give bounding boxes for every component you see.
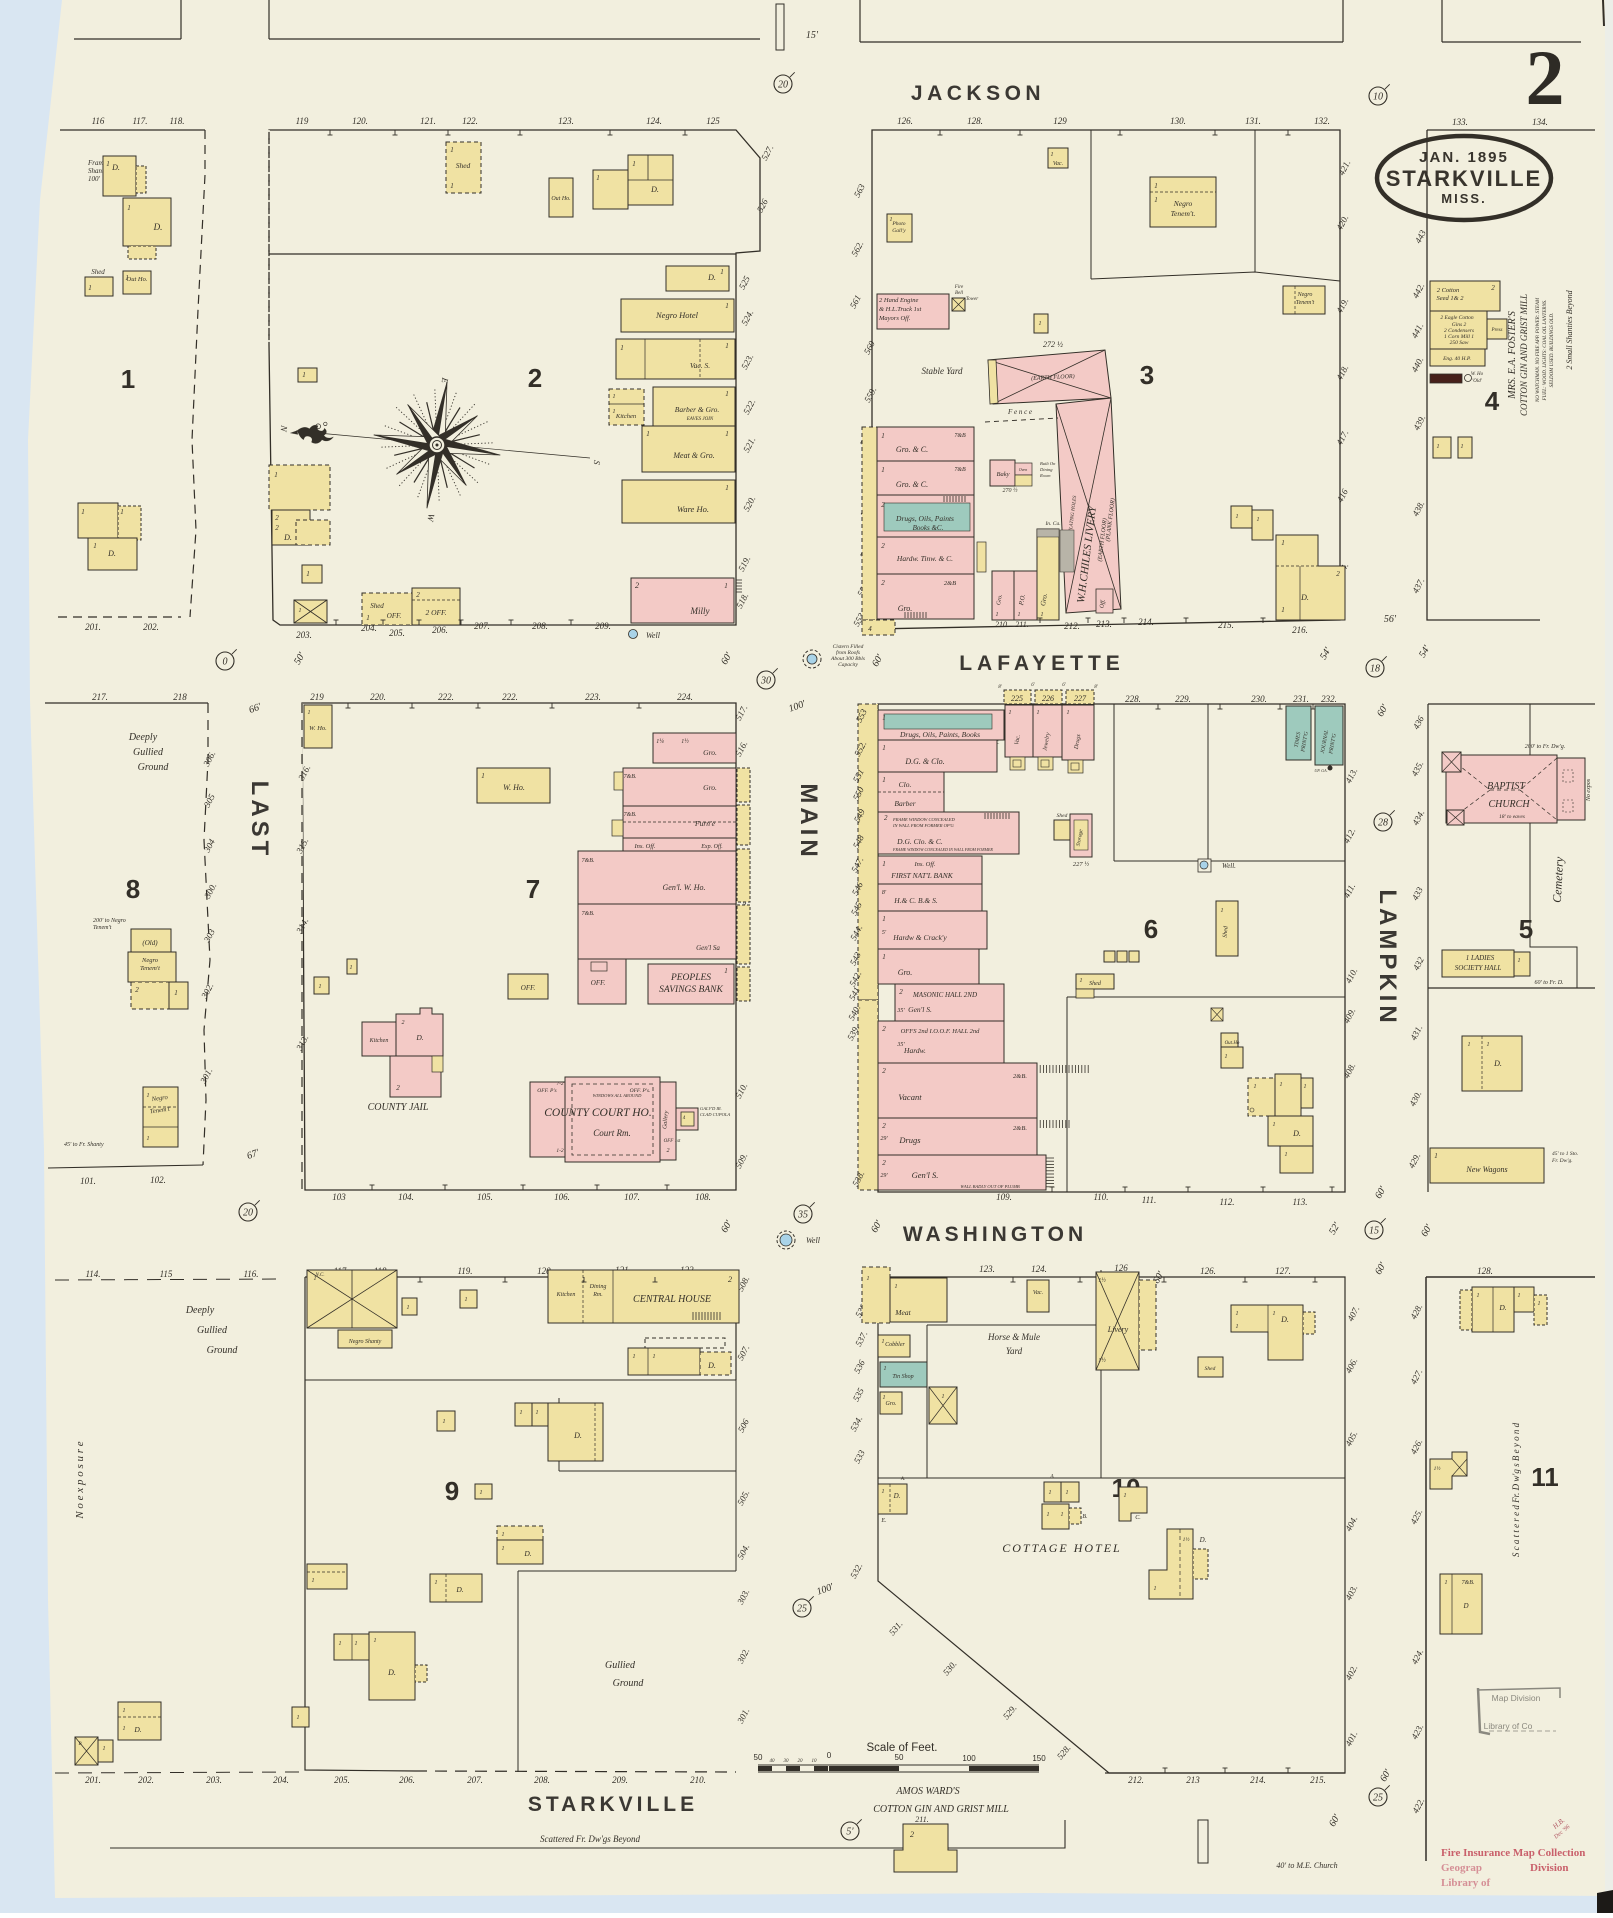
svg-text:S c a t t e r e d Fr. D w'g: S c a t t e r e d Fr. D w'g s B e y o n … — [1511, 1422, 1521, 1557]
svg-text:1: 1 — [1009, 710, 1012, 716]
svg-text:New Wagons: New Wagons — [1465, 1165, 1507, 1174]
svg-text:Oven: Oven — [1019, 467, 1027, 472]
svg-text:CLAD CUPOLA: CLAD CUPOLA — [700, 1112, 730, 1117]
svg-text:WALL BADLY OUT OF PLUMB: WALL BADLY OUT OF PLUMB — [960, 1184, 1019, 1189]
svg-text:1: 1 — [1280, 1082, 1283, 1088]
svg-text:LAMPKIN: LAMPKIN — [1374, 889, 1401, 1026]
svg-text:Seed 1& 2: Seed 1& 2 — [1436, 295, 1464, 302]
svg-text:1-2: 1-2 — [556, 1148, 564, 1154]
svg-text:123.: 123. — [979, 1264, 995, 1274]
svg-text:FIRST NAT'L BANK: FIRST NAT'L BANK — [890, 871, 953, 880]
svg-text:226: 226 — [1042, 694, 1054, 703]
svg-text:6: 6 — [1144, 914, 1158, 944]
svg-text:Gen'l Sa: Gen'l Sa — [696, 944, 720, 952]
svg-text:OFF. P's: OFF. P's — [537, 1088, 556, 1094]
svg-text:1: 1 — [653, 1354, 656, 1360]
svg-text:Drugs, Oils, Paints, Books: Drugs, Oils, Paints, Books — [899, 730, 980, 739]
svg-text:F e n c e: F e n c e — [1007, 408, 1032, 416]
svg-text:Press: Press — [1491, 328, 1503, 333]
svg-text:Gen'l S.: Gen'l S. — [908, 1005, 932, 1014]
svg-text:250 Saw: 250 Saw — [1450, 340, 1469, 346]
svg-text:1: 1 — [127, 204, 131, 212]
svg-text:1: 1 — [882, 1489, 885, 1495]
svg-text:D.: D. — [573, 1431, 582, 1440]
svg-text:2: 2 — [396, 1084, 400, 1092]
svg-text:4: 4 — [1485, 386, 1500, 416]
svg-text:1½: 1½ — [681, 738, 689, 745]
svg-text:30: 30 — [760, 676, 771, 687]
svg-text:1 LADIES: 1 LADIES — [1466, 954, 1495, 962]
svg-text:Deeply: Deeply — [185, 1305, 215, 1316]
svg-text:107.: 107. — [624, 1192, 640, 1202]
svg-text:1: 1 — [724, 582, 728, 590]
svg-text:223.: 223. — [585, 692, 601, 702]
svg-text:Geograp: Geograp — [1441, 1862, 1482, 1874]
svg-text:50: 50 — [754, 1753, 763, 1762]
svg-text:118.: 118. — [169, 116, 184, 126]
svg-text:FRAME WINDOW CONCEALED: FRAME WINDOW CONCEALED — [892, 817, 955, 822]
svg-text:1: 1 — [620, 344, 624, 352]
svg-text:2 OFF.: 2 OFF. — [425, 608, 446, 617]
svg-text:1: 1 — [646, 430, 650, 438]
svg-text:Kitchen: Kitchen — [369, 1038, 389, 1044]
svg-text:Library of Co: Library of Co — [1484, 1721, 1533, 1731]
svg-text:1: 1 — [882, 915, 886, 923]
svg-text:WASHINGTON: WASHINGTON — [903, 1223, 1087, 1246]
svg-text:1: 1 — [1518, 1293, 1521, 1299]
svg-text:GALV'D IR.: GALV'D IR. — [700, 1106, 722, 1111]
svg-text:122.: 122. — [462, 116, 478, 126]
svg-text:1: 1 — [120, 508, 124, 516]
svg-text:1: 1 — [725, 302, 729, 310]
svg-text:109.: 109. — [996, 1192, 1012, 1202]
svg-text:1: 1 — [450, 182, 454, 190]
svg-text:D.: D. — [707, 273, 716, 282]
svg-text:1: 1 — [1154, 196, 1158, 204]
svg-text:Horse & Mule: Horse & Mule — [987, 1332, 1040, 1342]
svg-text:18: 18 — [1370, 664, 1380, 675]
svg-text:D.: D. — [153, 222, 163, 232]
svg-text:Well.: Well. — [1222, 862, 1236, 870]
svg-text:Photo: Photo — [891, 221, 905, 227]
svg-text:CHURCH: CHURCH — [1488, 799, 1530, 810]
svg-text:1: 1 — [123, 1726, 126, 1732]
svg-text:124.: 124. — [646, 116, 662, 126]
svg-text:Gullied: Gullied — [133, 747, 164, 758]
svg-text:1: 1 — [882, 714, 886, 722]
svg-text:1: 1 — [1225, 1054, 1228, 1060]
svg-text:1: 1 — [725, 430, 729, 438]
svg-text:Milly: Milly — [690, 606, 710, 616]
svg-text:1: 1 — [1445, 1580, 1448, 1586]
svg-text:232.: 232. — [1321, 694, 1337, 704]
svg-text:1: 1 — [1281, 606, 1285, 614]
svg-text:D.: D. — [893, 1492, 901, 1500]
svg-text:1: 1 — [1285, 1152, 1288, 1158]
svg-text:1: 1 — [88, 284, 92, 292]
svg-text:MISS.: MISS. — [1441, 191, 1486, 206]
svg-text:45' to Fr. Shanty: 45' to Fr. Shanty — [64, 1141, 104, 1148]
svg-text:128.: 128. — [967, 116, 983, 126]
svg-text:1: 1 — [312, 1578, 315, 1584]
svg-text:10: 10 — [1373, 92, 1383, 103]
svg-text:2&B: 2&B — [944, 580, 956, 587]
svg-text:A.: A. — [900, 1477, 905, 1482]
svg-text:1: 1 — [1254, 1084, 1257, 1090]
svg-text:1: 1 — [633, 1354, 636, 1360]
svg-text:BAPTIST: BAPTIST — [1487, 781, 1526, 792]
svg-text:127.: 127. — [1275, 1266, 1291, 1276]
svg-text:1: 1 — [1018, 612, 1021, 618]
svg-text:1: 1 — [1461, 444, 1464, 450]
svg-text:202.: 202. — [138, 1775, 154, 1785]
svg-text:30: 30 — [784, 1759, 790, 1764]
svg-text:D.: D. — [650, 185, 659, 194]
svg-text:OFF.: OFF. — [591, 979, 606, 987]
svg-text:212.: 212. — [1128, 1775, 1144, 1785]
svg-text:COTTON GIN AND GRIST MILL: COTTON GIN AND GRIST MILL — [1519, 294, 1529, 416]
svg-text:Out.Ho: Out.Ho — [1225, 1041, 1240, 1046]
svg-text:Clo.: Clo. — [899, 780, 912, 789]
svg-text:D.: D. — [523, 1549, 531, 1558]
svg-text:Books &C.: Books &C. — [913, 524, 944, 532]
svg-text:1: 1 — [1236, 1324, 1239, 1330]
svg-text:1: 1 — [366, 614, 370, 622]
svg-text:Dining: Dining — [589, 1284, 607, 1290]
svg-text:119: 119 — [296, 116, 309, 126]
svg-text:Gullied: Gullied — [197, 1325, 228, 1336]
svg-text:150: 150 — [1032, 1754, 1046, 1763]
svg-text:209.: 209. — [595, 621, 611, 631]
svg-text:Yard: Yard — [1006, 1346, 1023, 1356]
svg-text:Fire Insurance Map Collection: Fire Insurance Map Collection — [1441, 1847, 1585, 1859]
svg-text:7&B: 7&B — [954, 467, 966, 473]
svg-text:3: 3 — [1140, 360, 1154, 390]
svg-text:B.: B. — [1082, 1514, 1087, 1520]
svg-text:131.: 131. — [1245, 116, 1261, 126]
svg-text:1: 1 — [536, 1410, 539, 1416]
svg-text:2: 2 — [882, 1025, 886, 1033]
svg-text:Gen'l. W. Ho.: Gen'l. W. Ho. — [663, 883, 706, 892]
svg-text:Kitchen: Kitchen — [556, 1292, 576, 1298]
svg-text:D.: D. — [283, 533, 292, 542]
svg-text:103: 103 — [332, 1192, 346, 1202]
svg-text:18' to eaves: 18' to eaves — [1499, 814, 1525, 820]
svg-text:202.: 202. — [143, 622, 159, 632]
svg-text:Eng. 40 H.P.: Eng. 40 H.P. — [1442, 355, 1471, 362]
svg-text:1: 1 — [125, 274, 129, 282]
svg-text:1: 1 — [121, 364, 135, 394]
svg-text:29': 29' — [880, 1136, 888, 1142]
svg-text:Gro. & C.: Gro. & C. — [896, 480, 928, 489]
svg-text:7&B.: 7&B. — [582, 911, 595, 917]
svg-text:116.: 116. — [243, 1269, 258, 1279]
svg-text:210.: 210. — [690, 1775, 706, 1785]
svg-text:7&B: 7&B — [954, 433, 966, 439]
svg-text:Exp. Off.: Exp. Off. — [700, 843, 723, 850]
svg-text:119.: 119. — [457, 1266, 472, 1276]
svg-text:1: 1 — [613, 409, 616, 415]
svg-text:Map Division: Map Division — [1492, 1693, 1541, 1703]
svg-text:225: 225 — [1011, 694, 1023, 703]
svg-text:Meat: Meat — [894, 1308, 911, 1317]
svg-text:Rm.: Rm. — [592, 1292, 603, 1298]
svg-text:1: 1 — [435, 1580, 438, 1586]
svg-text:Fr. Dw'g.: Fr. Dw'g. — [1551, 1158, 1573, 1164]
svg-text:1: 1 — [725, 390, 729, 398]
svg-text:211.: 211. — [915, 1815, 928, 1824]
svg-text:60' to Fr. D.: 60' to Fr. D. — [1534, 980, 1563, 986]
svg-text:1: 1 — [450, 146, 454, 154]
svg-text:2&B.: 2&B. — [1013, 1073, 1027, 1080]
svg-text:1: 1 — [632, 160, 636, 168]
svg-text:210.: 210. — [995, 620, 1009, 629]
svg-text:1: 1 — [81, 508, 85, 516]
svg-text:40: 40 — [770, 1759, 776, 1764]
svg-text:Tenem't.: Tenem't. — [1171, 209, 1196, 218]
svg-text:1: 1 — [443, 1419, 446, 1425]
svg-text:0: 0 — [223, 657, 228, 668]
svg-text:2: 2 — [882, 1067, 886, 1075]
svg-text:211.: 211. — [1015, 620, 1028, 629]
svg-text:Baky: Baky — [997, 471, 1010, 478]
svg-text:112.: 112. — [1219, 1197, 1234, 1207]
svg-text:20: 20 — [798, 1759, 804, 1764]
svg-text:213.: 213. — [1096, 619, 1112, 629]
svg-text:Negro Shanty: Negro Shanty — [348, 1339, 382, 1345]
svg-text:MAIN: MAIN — [795, 783, 822, 860]
svg-text:4: 4 — [868, 625, 872, 633]
svg-text:1½: 1½ — [1098, 1357, 1106, 1364]
svg-text:FUEL: WOOD. LIGHTS: COAL OIL L: FUEL: WOOD. LIGHTS: COAL OIL LANTERNS. — [1543, 299, 1548, 401]
svg-text:208.: 208. — [534, 1775, 550, 1785]
svg-text:JACKSON: JACKSON — [911, 82, 1045, 105]
svg-text:1: 1 — [355, 1641, 358, 1647]
svg-text:1: 1 — [1154, 1586, 1157, 1592]
svg-text:100': 100' — [88, 175, 101, 183]
svg-text:Ground: Ground — [613, 1678, 645, 1689]
svg-text:7&B.: 7&B. — [624, 812, 637, 818]
svg-text:56': 56' — [1384, 614, 1397, 625]
svg-text:229.: 229. — [1175, 694, 1191, 704]
svg-text:2: 2 — [728, 1275, 732, 1284]
svg-text:1: 1 — [1080, 978, 1083, 984]
svg-text:Shed: Shed — [370, 602, 384, 610]
svg-text:1: 1 — [407, 1305, 410, 1311]
svg-text:Vac.: Vac. — [1053, 161, 1063, 167]
svg-text:COUNTY COURT HO.: COUNTY COURT HO. — [544, 1107, 651, 1119]
svg-text:Ins. Off.: Ins. Off. — [913, 861, 936, 868]
svg-text:20: 20 — [778, 80, 788, 91]
svg-text:7&B.: 7&B. — [624, 774, 637, 780]
svg-text:128.: 128. — [1477, 1266, 1493, 1276]
svg-text:Cobbler: Cobbler — [885, 1342, 905, 1348]
svg-text:Dining: Dining — [1039, 467, 1053, 472]
svg-text:1: 1 — [882, 776, 886, 784]
svg-text:Drugs: Drugs — [898, 1135, 921, 1145]
svg-text:28: 28 — [1378, 818, 1388, 829]
svg-text:133.: 133. — [1452, 117, 1468, 127]
svg-text:& H.L.Truck 1st: & H.L.Truck 1st — [879, 306, 921, 313]
svg-text:102.: 102. — [150, 1175, 166, 1185]
svg-text:106.: 106. — [554, 1192, 570, 1202]
svg-text:Gullied: Gullied — [605, 1660, 636, 1671]
svg-text:213: 213 — [1186, 1775, 1200, 1785]
svg-text:227: 227 — [1074, 694, 1087, 703]
svg-text:Vac. S.: Vac. S. — [690, 361, 710, 370]
svg-text:A: A — [1049, 1474, 1054, 1480]
svg-text:C.: C. — [1135, 1515, 1141, 1521]
svg-text:1: 1 — [1221, 908, 1224, 914]
svg-text:116: 116 — [92, 116, 105, 126]
svg-text:132.: 132. — [1314, 116, 1330, 126]
svg-text:1: 1 — [895, 1284, 898, 1290]
svg-text:2: 2 — [882, 1122, 886, 1130]
svg-text:203.: 203. — [206, 1775, 222, 1785]
svg-text:101.: 101. — [80, 1176, 96, 1186]
svg-text:D.: D. — [455, 1585, 463, 1594]
svg-text:208.: 208. — [532, 621, 548, 631]
svg-text:8: 8 — [126, 874, 140, 904]
svg-text:1: 1 — [502, 1532, 505, 1538]
svg-text:Gen'l S.: Gen'l S. — [912, 1170, 939, 1180]
svg-text:N o e x p o s u r e: N o e x p o s u r e — [74, 1441, 86, 1519]
svg-text:Gall'y: Gall'y — [892, 228, 906, 234]
svg-text:Livery: Livery — [1107, 1325, 1129, 1334]
svg-text:Cemetery: Cemetery — [1550, 856, 1566, 903]
svg-text:1: 1 — [502, 1546, 505, 1552]
svg-text:1: 1 — [147, 1093, 150, 1099]
svg-text:W. Ho.: W. Ho. — [309, 725, 327, 732]
svg-text:1: 1 — [1041, 612, 1044, 618]
svg-text:29': 29' — [880, 1173, 888, 1179]
svg-text:228.: 228. — [1125, 694, 1141, 704]
svg-text:CENTRAL HOUSE: CENTRAL HOUSE — [633, 1294, 711, 1305]
svg-text:1: 1 — [881, 466, 885, 474]
svg-text:15: 15 — [1369, 1226, 1379, 1237]
svg-text:1: 1 — [1273, 1311, 1276, 1317]
svg-text:207.: 207. — [467, 1775, 483, 1785]
svg-text:216.: 216. — [1292, 625, 1308, 635]
svg-text:1: 1 — [1487, 1042, 1490, 1048]
svg-text:Negro Hotel: Negro Hotel — [655, 310, 699, 320]
svg-text:224.: 224. — [677, 692, 693, 702]
svg-text:PEOPLES: PEOPLES — [670, 973, 711, 983]
svg-text:D.: D. — [1199, 1536, 1207, 1544]
svg-text:D.: D. — [387, 1668, 396, 1677]
svg-text:1: 1 — [302, 371, 306, 379]
svg-text:1: 1 — [1437, 444, 1440, 450]
svg-text:214.: 214. — [1250, 1775, 1266, 1785]
svg-text:1: 1 — [1061, 1512, 1064, 1518]
svg-text:1: 1 — [374, 1638, 377, 1644]
svg-text:1: 1 — [613, 394, 616, 400]
svg-text:Shed: Shed — [456, 161, 471, 170]
svg-text:2: 2 — [881, 579, 885, 587]
svg-text:227 ½: 227 ½ — [1073, 861, 1089, 868]
svg-text:110.: 110. — [1093, 1192, 1108, 1202]
svg-text:200' to Fr. Dw'g.: 200' to Fr. Dw'g. — [1525, 744, 1565, 750]
svg-text:45' to 1 Sto.: 45' to 1 Sto. — [1552, 1150, 1578, 1157]
svg-text:SOCIETY HALL: SOCIETY HALL — [1455, 964, 1502, 972]
svg-text:OFFS 2nd I.O.O.F. HALL 2nd: OFFS 2nd I.O.O.F. HALL 2nd — [901, 1028, 981, 1035]
svg-text:126.: 126. — [1200, 1266, 1216, 1276]
svg-text:201.: 201. — [85, 622, 101, 632]
svg-text:D.: D. — [1292, 1129, 1301, 1138]
svg-text:7-2: 7-2 — [556, 1081, 564, 1087]
svg-text:50: 50 — [895, 1753, 904, 1762]
svg-text:2: 2 — [1336, 570, 1340, 578]
svg-text:1: 1 — [308, 710, 311, 716]
svg-text:1: 1 — [942, 1394, 945, 1400]
svg-text:201.: 201. — [85, 1775, 101, 1785]
svg-text:LAFAYETTE: LAFAYETTE — [959, 652, 1125, 675]
svg-text:1: 1 — [884, 1366, 887, 1372]
svg-text:2 Small Shanties Beyond: 2 Small Shanties Beyond — [1565, 289, 1574, 369]
svg-text:1: 1 — [1047, 1512, 1050, 1518]
svg-text:2 Hand Engine: 2 Hand Engine — [879, 297, 918, 304]
svg-text:40' to M.E. Church: 40' to M.E. Church — [1276, 1861, 1337, 1870]
svg-text:1: 1 — [725, 342, 729, 350]
svg-text:2: 2 — [899, 988, 903, 996]
svg-text:5': 5' — [882, 930, 887, 936]
svg-text:218: 218 — [173, 692, 187, 702]
svg-text:STARKVILLE: STARKVILLE — [528, 1793, 698, 1816]
svg-text:2: 2 — [402, 1020, 405, 1026]
svg-text:2: 2 — [135, 986, 139, 994]
svg-text:1: 1 — [481, 772, 485, 780]
svg-text:B: B — [78, 1742, 81, 1747]
svg-text:207.: 207. — [474, 621, 490, 631]
svg-text:35': 35' — [896, 1042, 905, 1048]
svg-text:200' to Negro: 200' to Negro — [93, 918, 126, 924]
svg-text:1: 1 — [1236, 1311, 1239, 1317]
svg-text:1: 1 — [106, 160, 110, 168]
svg-text:IN WALL FROM FORMER OP'G: IN WALL FROM FORMER OP'G — [892, 823, 955, 828]
svg-text:1: 1 — [319, 984, 322, 990]
svg-text:1: 1 — [1477, 1293, 1480, 1299]
svg-text:1: 1 — [350, 965, 353, 971]
svg-text:2: 2 — [1491, 284, 1495, 292]
svg-text:1: 1 — [93, 542, 97, 550]
svg-text:1: 1 — [867, 1276, 870, 1282]
svg-text:D.: D. — [107, 549, 116, 558]
svg-text:1: 1 — [883, 1395, 886, 1401]
svg-text:1: 1 — [1281, 539, 1285, 547]
svg-text:217.: 217. — [92, 692, 108, 702]
svg-text:Shed: Shed — [1057, 813, 1068, 819]
svg-text:D.G. & Clo.: D.G. & Clo. — [904, 757, 944, 766]
svg-text:W. Ho.: W. Ho. — [503, 783, 525, 792]
svg-text:Negro: Negro — [141, 957, 159, 964]
svg-text:1: 1 — [1518, 958, 1521, 964]
svg-text:2: 2 — [416, 591, 420, 599]
svg-text:1: 1 — [297, 1715, 300, 1721]
svg-text:STARKVILLE: STARKVILLE — [1386, 166, 1542, 191]
svg-text:Fire: Fire — [954, 285, 964, 290]
svg-text:1: 1 — [1039, 321, 1042, 327]
svg-text:230.: 230. — [1251, 694, 1267, 704]
svg-text:1½: 1½ — [1434, 1465, 1441, 1472]
svg-text:1: 1 — [1236, 514, 1239, 520]
svg-text:Scattered Fr. Dw'gs Beyond: Scattered Fr. Dw'gs Beyond — [540, 1834, 641, 1844]
svg-text:LAST: LAST — [246, 781, 273, 860]
svg-text:Room: Room — [1039, 473, 1051, 478]
svg-text:5': 5' — [846, 1827, 854, 1838]
svg-text:203.: 203. — [296, 630, 312, 640]
svg-text:205.: 205. — [389, 628, 405, 638]
svg-text:100: 100 — [962, 1754, 976, 1763]
